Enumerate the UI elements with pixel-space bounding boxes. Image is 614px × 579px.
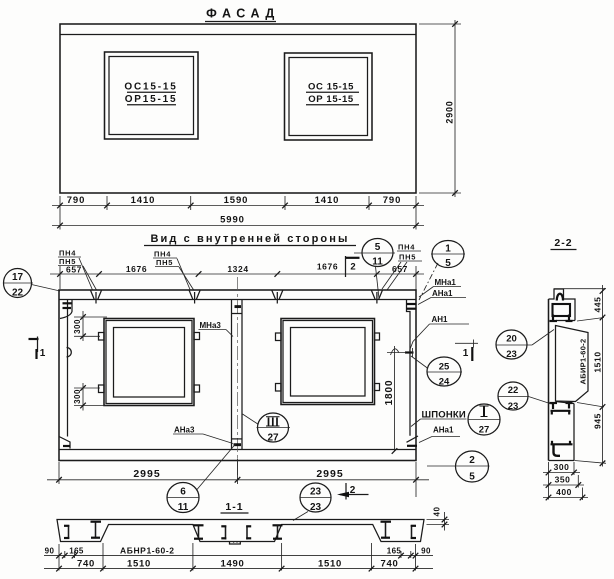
- svg-text:27: 27: [267, 433, 279, 444]
- svg-text:1-1: 1-1: [225, 501, 243, 513]
- svg-text:1676: 1676: [317, 262, 338, 272]
- svg-text:24: 24: [439, 377, 450, 388]
- svg-text:300: 300: [73, 319, 82, 334]
- svg-text:740: 740: [381, 559, 399, 570]
- svg-text:2-2: 2-2: [554, 237, 572, 249]
- svg-text:МНа3: МНа3: [200, 321, 222, 330]
- svg-text:165: 165: [69, 547, 84, 556]
- svg-text:2900: 2900: [445, 100, 455, 123]
- svg-text:27: 27: [479, 425, 490, 436]
- svg-text:300: 300: [554, 462, 570, 472]
- svg-text:Вид с внутренней стороны: Вид с внутренней стороны: [151, 233, 350, 245]
- svg-text:1410: 1410: [131, 195, 156, 206]
- svg-text:2995: 2995: [133, 468, 160, 480]
- svg-text:1410: 1410: [315, 195, 340, 206]
- svg-text:1324: 1324: [227, 264, 248, 274]
- svg-text:ОР 15-15: ОР 15-15: [308, 94, 354, 105]
- svg-text:ФАСАД: ФАСАД: [206, 7, 280, 21]
- svg-text:2: 2: [350, 262, 355, 273]
- svg-text:2: 2: [469, 455, 475, 466]
- svg-text:АНа1: АНа1: [433, 426, 454, 435]
- svg-text:ОС 15-15: ОС 15-15: [308, 82, 354, 93]
- svg-text:22: 22: [12, 288, 24, 299]
- svg-text:1510: 1510: [593, 351, 603, 372]
- svg-text:1800: 1800: [384, 380, 395, 406]
- svg-text:17: 17: [12, 272, 24, 283]
- svg-text:1: 1: [463, 348, 469, 359]
- svg-text:ПН4: ПН4: [398, 243, 415, 252]
- svg-text:400: 400: [556, 487, 572, 497]
- svg-text:40: 40: [433, 507, 442, 517]
- svg-text:ОР15-15: ОР15-15: [125, 94, 178, 105]
- svg-text:АБНР1-60-2: АБНР1-60-2: [120, 545, 175, 555]
- svg-text:90: 90: [45, 547, 55, 556]
- svg-text:6: 6: [180, 487, 186, 498]
- svg-text:1: 1: [40, 348, 46, 359]
- svg-text:23: 23: [310, 502, 322, 513]
- svg-text:11: 11: [372, 257, 383, 268]
- svg-text:1510: 1510: [318, 559, 342, 570]
- svg-text:5990: 5990: [220, 215, 245, 226]
- svg-text:ОС15-15: ОС15-15: [124, 82, 177, 93]
- svg-text:22: 22: [508, 385, 519, 396]
- svg-text:790: 790: [383, 195, 402, 206]
- svg-text:1510: 1510: [127, 559, 151, 570]
- svg-text:657: 657: [66, 265, 82, 275]
- svg-text:165: 165: [387, 547, 402, 556]
- svg-text:23: 23: [310, 487, 322, 498]
- svg-text:АН1: АН1: [432, 315, 449, 324]
- svg-text:ПН5: ПН5: [399, 253, 416, 262]
- svg-text:АНа1: АНа1: [432, 289, 453, 298]
- svg-text:945: 945: [593, 413, 603, 429]
- svg-text:300: 300: [73, 389, 82, 404]
- svg-text:5: 5: [469, 472, 475, 483]
- svg-text:90: 90: [421, 547, 431, 556]
- svg-text:АНа3: АНа3: [174, 426, 195, 435]
- svg-text:23: 23: [508, 401, 519, 412]
- svg-text:2995: 2995: [316, 468, 343, 480]
- svg-text:350: 350: [555, 475, 571, 485]
- svg-text:25: 25: [439, 362, 450, 373]
- svg-text:ПН5: ПН5: [156, 258, 173, 267]
- svg-text:740: 740: [77, 559, 95, 570]
- svg-text:445: 445: [593, 297, 603, 313]
- svg-text:АБИР1-60-2: АБИР1-60-2: [579, 339, 588, 385]
- svg-text:11: 11: [178, 502, 189, 513]
- svg-text:23: 23: [506, 349, 517, 360]
- svg-text:МНа1: МНа1: [435, 278, 457, 287]
- svg-text:5: 5: [375, 242, 381, 253]
- svg-text:657: 657: [392, 264, 408, 274]
- svg-text:1: 1: [445, 244, 451, 255]
- svg-text:5: 5: [445, 258, 451, 269]
- svg-text:20: 20: [506, 334, 517, 345]
- svg-text:1590: 1590: [224, 195, 249, 206]
- svg-text:1490: 1490: [221, 559, 245, 570]
- svg-text:790: 790: [67, 195, 86, 206]
- svg-text:1676: 1676: [126, 264, 147, 274]
